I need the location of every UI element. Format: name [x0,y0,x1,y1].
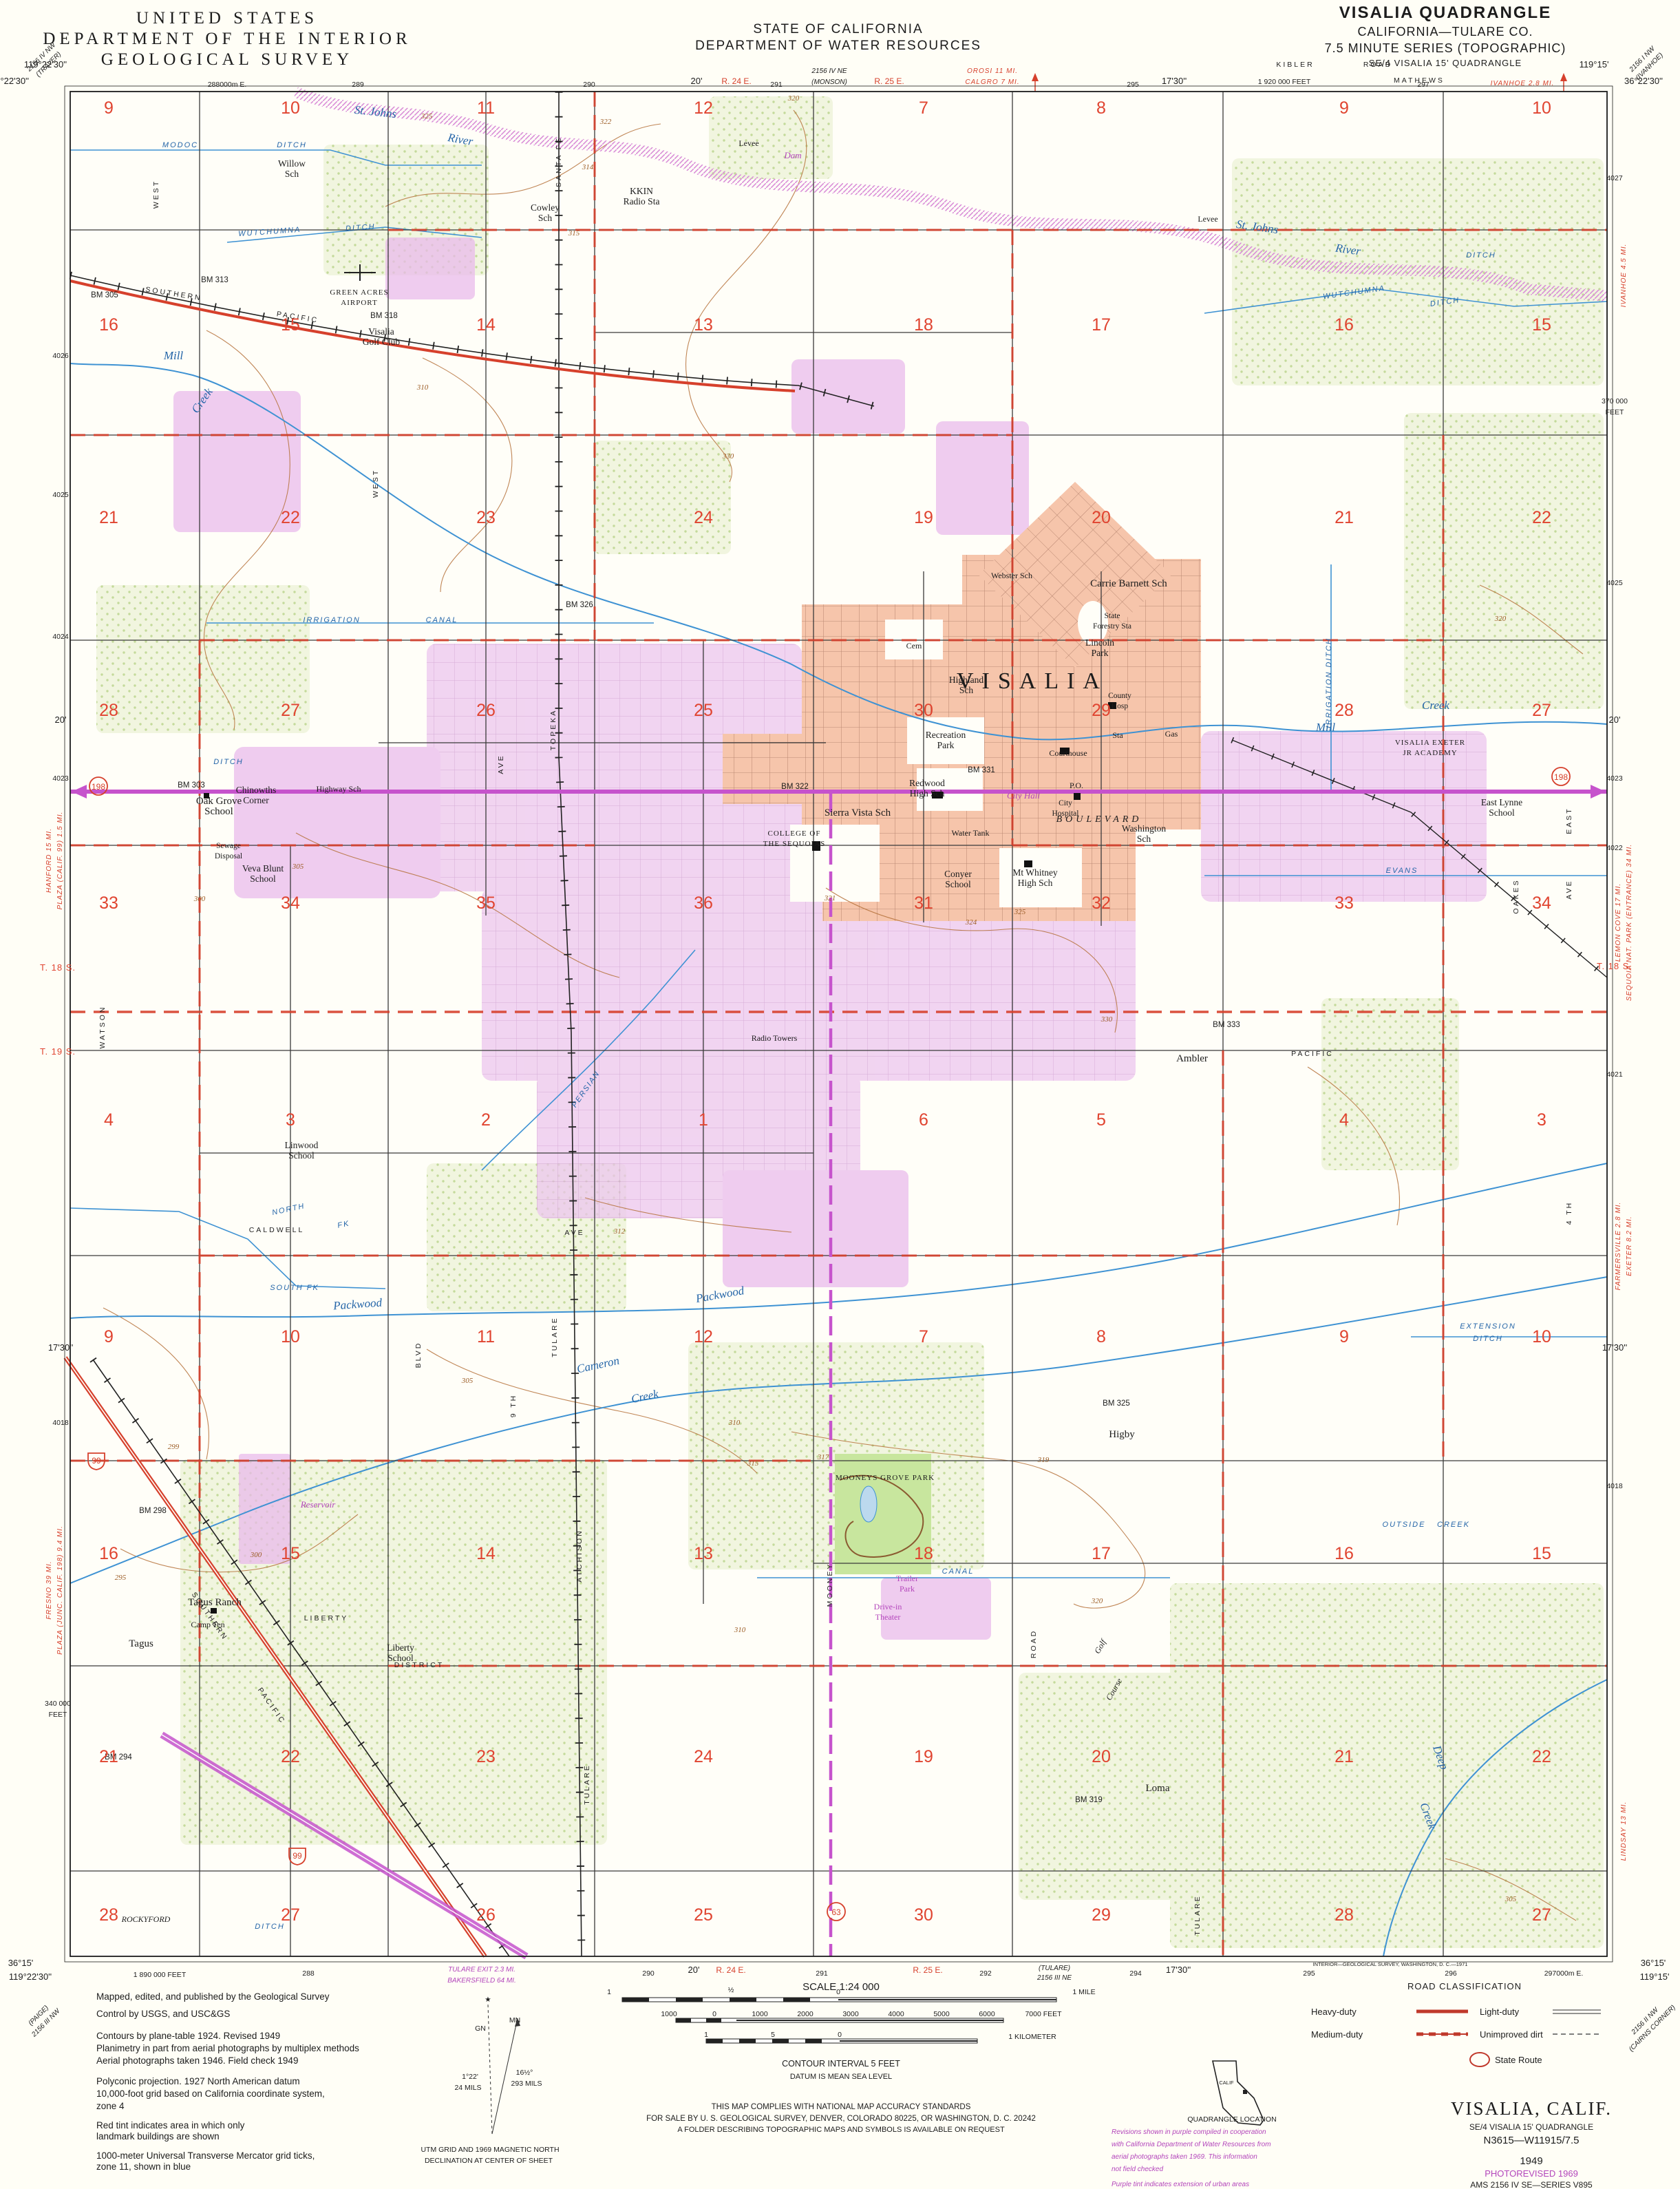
section-number: 23 [476,1747,496,1766]
datum-note: DATUM IS MEAN SEA LEVEL [790,2073,892,2081]
section-number: 36 [694,893,713,913]
map-label: PACIFIC [1291,1050,1334,1058]
map-label: Ambler [1176,1053,1208,1064]
section-number: 16 [99,1544,118,1563]
gn-mils: 24 MILS [454,2084,481,2092]
map-label: MODOC [162,141,198,149]
map-label: SANTA FE [555,136,563,187]
section-number: 5 [1096,1110,1106,1130]
title-block: VISALIA, CALIF. SE/4 VISALIA 15' QUADRAN… [1451,2098,1612,2189]
map-label: Highway Sch [317,784,361,794]
section-number: 21 [99,1747,118,1766]
map-label: CREEK [1437,1521,1470,1529]
section-number: 30 [914,701,933,720]
map-label: KIBLER [1276,61,1314,69]
contour-label: 300 [250,1551,262,1559]
section-number: 23 [476,508,496,527]
map-label: Creek [1422,699,1449,712]
purple-revision-note: aerial photographs taken 1969. This info… [1112,2153,1257,2161]
grid-north-label: GN [475,2024,486,2033]
gn-angle: 1°22' [462,2073,478,2081]
footer-credit-line: Planimetry in part from aerial photograp… [96,2043,359,2053]
map-label: ROAD [1030,1629,1038,1658]
margin-top-label: 36°22'30'' [0,76,29,86]
section-number: 14 [476,315,496,335]
section-number: 15 [281,1544,300,1563]
margin-right-label: SEQUOIA NAT. PARK (ENTRANCE) 34 MI. [1626,844,1633,1001]
contour-label: 320 [1091,1597,1103,1605]
map-label: Drive-inTheater [874,1602,902,1622]
section-number: 22 [281,508,300,527]
map-label: Mill [163,349,184,362]
margin-bottom-label: 288 [302,1969,315,1978]
scale-feet-label: 4000 [888,2010,904,2018]
map-label: WEST [372,469,380,498]
state-route-label: State Route [1495,2055,1542,2065]
section-number: 15 [1532,315,1551,335]
margin-left-label: PLAZA (JUNC. CALIF. 198) 9.4 MI. [56,1525,64,1655]
section-number: 29 [1092,1905,1111,1925]
folder-note: A FOLDER DESCRIBING TOPOGRAPHIC MAPS AND… [677,2126,1005,2134]
scale-feet-label: 0 [712,2010,716,2018]
section-number: 7 [919,98,928,118]
margin-top-label: R. 24 E. [721,76,751,86]
contour-label: 321 [824,894,836,902]
margin-right-label: LINDSAY 13 MI. [1620,1801,1628,1861]
contour-label: 295 [115,1574,127,1582]
section-number: 8 [1096,98,1106,118]
margin-top-label: (MONSON) [811,78,847,86]
scale-title: SCALE 1:24 000 [802,1981,880,1993]
margin-left-label: 4026 [52,352,69,360]
margin-top-label: 295 [1127,81,1139,89]
map-label: DITCH [1466,251,1496,260]
section-number: 15 [281,315,300,335]
map-label: EVANS [1386,867,1418,875]
footer-credit-line: Red tint indicates area in which only [96,2120,245,2130]
section-number: 28 [99,1905,118,1925]
map-label: Reservoir [300,1499,336,1510]
section-number: 11 [477,1327,495,1346]
section-number: 33 [1335,893,1354,913]
margin-right-label: 17'30'' [1602,1342,1627,1353]
map-label: LinwoodSchool [285,1140,319,1161]
map-label: BM 325 [1103,1399,1130,1408]
section-number: 22 [1532,508,1551,527]
section-number: 10 [281,1327,300,1346]
section-number: 25 [694,1905,713,1925]
section-number: 24 [694,1747,713,1766]
margin-bottom-label: R. 24 E. [716,1965,745,1975]
margin-bottom-label: 291 [816,1969,828,1978]
roadclass-title: ROAD CLASSIFICATION [1407,1981,1522,1991]
margin-bottom-label: 294 [1129,1969,1142,1978]
scale-feet-label: 7000 FEET [1025,2010,1062,2018]
scale-feet-label: 6000 [979,2010,995,2018]
purple-revision-note: with California Department of Water Reso… [1112,2141,1271,2148]
map-label: Dam [783,150,801,160]
contour-label: 305 [292,863,304,871]
margin-right-label: 370 000 [1602,397,1628,405]
section-number: 18 [914,315,933,335]
purple-revision-note: not field checked [1112,2166,1163,2173]
section-number: 4 [104,1110,114,1130]
ivanhoe-arrow [1560,73,1567,81]
light-duty-label: Light-duty [1480,2007,1520,2017]
map-label: RedwoodHigh Sch [909,778,945,799]
map-label: IRRIGATION [303,616,360,624]
footer-credit-line: 10,000-foot grid based on California coo… [96,2088,325,2099]
map-label: SOUTH FK [270,1284,319,1292]
margin-left-label: 20' [55,715,67,725]
section-number: 13 [694,315,713,335]
margin-top-label: 289 [352,81,364,89]
contour-label: 305 [461,1377,474,1385]
map-label: BM 318 [370,312,398,320]
section-number: 35 [476,893,496,913]
map-label: BM 303 [178,781,205,790]
map-label: CALDWELL [249,1226,305,1234]
section-number: 27 [1532,701,1551,720]
map-label: AVE [497,754,505,774]
margin-bottom-label: 36°15' [1641,1958,1666,1968]
state-route-number: 198 [92,782,105,792]
section-number: 30 [914,1905,933,1925]
agency-line-1: UNITED STATES [136,9,318,28]
topo-map-sheet: UNITED STATES DEPARTMENT OF THE INTERIOR… [0,0,1680,2189]
footer-credit-line: Mapped, edited, and published by the Geo… [96,1991,330,2002]
section-number: 21 [1335,508,1354,527]
contour-label: 324 [965,918,977,927]
margin-right-label: EXETER 8.2 MI. [1626,1216,1633,1276]
section-number: 11 [477,98,495,118]
orosi-arrow [1032,73,1039,81]
map-label: BM 322 [781,783,809,791]
scale-feet-label: 5000 [933,2010,950,2018]
map-label: 9 TH [509,1394,518,1418]
map-label: TULARE [551,1316,559,1357]
map-label: Sierra Vista Sch [825,807,891,818]
contour-label: 315 [568,229,580,237]
map-label: MOONEYS GROVE PARK [836,1474,935,1482]
declination-caption-2: DECLINATION AT CENTER OF SHEET [425,2157,553,2165]
section-number: 16 [1335,315,1354,335]
map-label: EXTENSION [1460,1322,1516,1331]
map-label: BM 331 [968,766,995,774]
purple-revision-note: Revisions shown in purple compiled in co… [1112,2128,1266,2136]
section-number: 18 [914,1544,933,1563]
accuracy-note: THIS MAP COMPLIES WITH NATIONAL MAP ACCU… [712,2103,971,2111]
map-label: IRRIGATION DITCH [1325,637,1333,728]
map-label: ConyerSchool [944,869,972,889]
section-number: 19 [914,508,933,527]
map-label: BM 319 [1075,1796,1103,1804]
margin-bottom-label: 36°15' [8,1958,34,1968]
scale-feet-label: 2000 [797,2010,814,2018]
section-number: 9 [104,98,114,118]
sale-note: FOR SALE BY U. S. GEOLOGICAL SURVEY, DEN… [646,2115,1036,2123]
map-label: DITCH [213,758,244,766]
margin-left-label: 340 000 [45,1700,71,1708]
section-number: 24 [694,508,713,527]
state-route-number: 63 [831,1907,841,1917]
agency-line-2: DEPARTMENT OF THE INTERIOR [43,30,411,48]
margin-top-label: 2156 IV NE [811,67,847,75]
contour-label: 325 [421,112,433,120]
margin-bottom-label: 292 [979,1969,992,1978]
map-label: MOONEY [826,1563,834,1607]
contour-label: 330 [1100,1015,1113,1024]
margin-bottom-label: 1 890 000 FEET [134,1971,187,1979]
declination-diagram: ★ GN MN 16½° 293 MILS 1°22' 24 MILS UTM … [421,1996,559,2165]
footer: ★ GN MN 16½° 293 MILS 1°22' 24 MILS UTM … [421,1981,1612,2189]
footer-credit-line: Contours by plane-table 1924. Revised 19… [96,2031,280,2041]
margin-bottom-label: 17'30'' [1166,1965,1191,1975]
agency-line-3: GEOLOGICAL SURVEY [101,50,353,69]
margin-bottom-label: 297000m E. [1544,1969,1584,1978]
margin-top-label: OROSI 11 MI. [967,67,1018,75]
map-label: OAKES [1512,878,1520,913]
section-number: 28 [1335,701,1354,720]
quad-subtitle-2: 7.5 MINUTE SERIES (TOPOGRAPHIC) [1325,41,1566,55]
margin-top-label: 290 [583,81,595,89]
margin-top-label: R. 25 E. [874,76,904,86]
scale-mile-label: 1 [607,1988,611,1996]
contour-label: 317 [817,1453,829,1461]
scale-bars: SCALE 1:24 000 CONTOUR INTERVAL 5 FEET D… [622,1981,1056,2134]
map-label: CANAL [942,1567,975,1576]
section-number: 17 [1092,315,1111,335]
margin-top-label: CALGRO 7 MI. [965,78,1019,86]
section-number: 3 [1537,1110,1546,1130]
margin-right-label: 4027 [1606,174,1623,182]
purple-revision-note: Purple tint indicates extension of urban… [1112,2181,1249,2188]
section-number: 21 [1335,1747,1354,1766]
section-number: 12 [694,98,713,118]
section-number: 14 [476,1544,496,1563]
section-number: 27 [1532,1905,1551,1925]
map-label: P.O. [1070,781,1083,790]
map-label: WATSON [98,1006,107,1049]
section-number: 9 [104,1327,114,1346]
margin-top-label: 20' [691,76,703,86]
contour-label: 305 [1504,1895,1517,1903]
margin-right-label: 4021 [1606,1070,1623,1079]
section-number: 20 [1092,1747,1111,1766]
section-number: 22 [1532,1747,1551,1766]
star-icon: ★ [485,1996,491,2004]
map-label: AVE [564,1229,584,1237]
corner-quad-note: 2156 II NW(CAIRNS CORNER) [1620,1996,1677,2053]
scale-mile-label: ½ [728,1986,734,1994]
scale-mile-label: 0 [836,1988,840,1996]
map-label: DITCH [1473,1335,1503,1343]
margin-top-label: 119°15' [1580,59,1609,70]
margin-bottom-label: INTERIOR—GEOLOGICAL SURVEY, WASHINGTON, … [1313,1961,1468,1967]
photorevised-note: PHOTOREVISED 1969 [1485,2168,1578,2179]
margin-bottom-label: 119°22'30'' [9,1971,52,1982]
state-route-oval [1470,2053,1489,2066]
map-label: Radio Towers [752,1033,798,1043]
margin-right-label: 4018 [1606,1482,1623,1490]
margin-top-label: 297 [1417,81,1429,89]
margin-left-label: 17'30'' [48,1342,73,1353]
section-number: 16 [99,315,118,335]
map-canvas: UNITED STATES DEPARTMENT OF THE INTERIOR… [0,0,1680,2189]
map-label: BM 305 [91,291,118,299]
declination-caption-1: UTM GRID AND 1969 MAGNETIC NORTH [421,2146,559,2154]
section-number: 9 [1339,98,1349,118]
sheet-year: 1949 [1520,2155,1542,2167]
road-classification: ROAD CLASSIFICATION Heavy-duty Light-dut… [1311,1981,1601,2066]
section-number: 16 [1335,1544,1354,1563]
map-label: Loma [1146,1783,1170,1794]
map-label: BM 298 [139,1507,167,1515]
map-label: BM 313 [201,276,228,284]
section-number: 28 [1335,1905,1354,1925]
margin-left-label: 4025 [52,491,69,499]
sheet-subtitle: SE/4 VISALIA 15' QUADRANGLE [1469,2122,1593,2132]
margin-left-label: FRESNO 39 MI. [45,1561,53,1619]
contour-label: 299 [168,1443,180,1451]
unimproved-dirt-label: Unimproved dirt [1480,2029,1543,2040]
margin-top-label: IVANHOE 2.8 MI. [1491,80,1555,87]
contour-label: 312 [613,1227,626,1236]
section-number: 12 [694,1327,713,1346]
map-label: LIBERTY [304,1614,349,1622]
map-label: TULARE [583,1764,591,1804]
map-label: Sta [1112,730,1123,740]
state-abbrev: CALIF [1219,2080,1234,2086]
header: UNITED STATES DEPARTMENT OF THE INTERIOR… [43,3,1566,69]
quadrangle-location: QUADRANGLE LOCATION CALIF [1187,2061,1276,2125]
margin-bottom-label: 119°15' [1640,1971,1670,1982]
footer-credit-line: Aerial photographs taken 1946. Field che… [96,2055,298,2066]
contour-interval: CONTOUR INTERVAL 5 FEET [782,2059,900,2069]
state-line-1: STATE OF CALIFORNIA [753,22,923,36]
section-number: 7 [919,1327,928,1346]
footer-credit-line: Control by USGS, and USC&GS [96,2009,230,2019]
section-number: 33 [99,893,118,913]
map-label: AVE [1565,879,1573,899]
margin-bottom-label: 290 [642,1969,655,1978]
margin-bottom-label: 295 [1303,1969,1315,1978]
section-number: 34 [1532,893,1551,913]
map-label: TOPEKA [549,709,557,750]
map-label: Camp Ten [191,1620,224,1629]
contour-label: 322 [599,118,612,126]
section-number: 2 [481,1110,491,1130]
margin-left-label: FEET [49,1711,67,1719]
map-label: DITCH [277,141,307,149]
margin-left-label: PLAZA (CALIF. 99) 1.5 MI. [56,812,64,910]
map-interior [65,73,1607,1956]
margin-right-label: FEET [1606,408,1624,416]
us-route-number: 99 [293,1851,302,1861]
mn-mils: 293 MILS [511,2080,542,2088]
section-number: 34 [281,893,300,913]
ams-series: AMS 2156 IV SE—SERIES V895 [1470,2180,1593,2189]
margin-right-label: 4025 [1606,579,1623,587]
sheet-coordinates: N3615—W11915/7.5 [1484,2135,1580,2146]
contour-label: 325 [1014,908,1026,916]
section-number: 29 [1092,701,1111,720]
map-label: BM 333 [1213,1021,1240,1029]
quad-subtitle-1: CALIFORNIA—TULARE CO. [1357,25,1533,39]
section-number: 26 [476,701,496,720]
section-number: 4 [1339,1110,1349,1130]
contour-label: 320 [1494,615,1507,623]
map-label: EAST [1565,807,1573,834]
section-number: 10 [1532,1327,1551,1346]
map-label: Carrie Barnett Sch [1090,578,1167,589]
map-label: ROCKYFORD [121,1914,171,1924]
sheet-title: VISALIA, CALIF. [1451,2098,1612,2119]
map-label: ROAD [1363,61,1392,69]
map-label: Webster Sch [991,571,1032,580]
section-number: 15 [1532,1544,1551,1563]
state-route-number: 198 [1554,772,1568,782]
contour-label: 314 [582,163,594,171]
map-label: Water Tank [952,828,990,838]
map-label: OUTSIDE [1383,1521,1426,1529]
section-number: 31 [914,893,933,913]
quad-location-caption: QUADRANGLE LOCATION [1187,2115,1276,2124]
margin-bottom-label: (TULARE) [1039,1965,1070,1972]
map-label: Mt WhitneyHigh Sch [1012,867,1058,888]
quad-title: VISALIA QUADRANGLE [1339,3,1551,22]
contour-label: 320 [787,94,800,103]
section-number: 10 [281,98,300,118]
contour-label: 300 [193,895,206,903]
map-label: Gas [1165,729,1178,739]
section-number: 10 [1532,98,1551,118]
scale-km-label: 1 [704,2031,708,2039]
margin-left-label: T. 19 S. [40,1046,76,1057]
margin-left-label: 4024 [52,633,69,641]
contour-label: 310 [416,383,429,392]
contour-label: 315 [747,1459,759,1468]
map-label: BLVD [414,1342,423,1368]
map-label: Cem [906,641,922,651]
section-number: 20 [1092,508,1111,527]
margin-bottom-label: BAKERSFIELD 64 MI. [447,1977,515,1985]
section-number: 27 [281,701,300,720]
margin-top-label: 17'30'' [1162,76,1187,86]
section-number: 21 [99,508,118,527]
scale-feet-label: 3000 [842,2010,859,2018]
contour-label: 319 [1037,1456,1050,1464]
footer-credit-line: zone 11, shown in blue [96,2161,191,2172]
city-name: VISALIA [957,668,1108,694]
section-number: 22 [281,1747,300,1766]
map-label: Tagus Ranch [188,1597,242,1608]
state-line-2: DEPARTMENT OF WATER RESOURCES [695,39,981,53]
section-number: 27 [281,1905,300,1925]
margin-bottom-label: 20' [688,1965,700,1975]
magnetic-north-label: MN [509,2016,520,2024]
scale-km-label: 0 [838,2031,842,2039]
section-number: 8 [1096,1327,1106,1346]
map-label: 4 TH [1565,1201,1573,1225]
scale-mile-label: 1 MILE [1072,1988,1095,1996]
margin-bottom-label: 296 [1445,1969,1457,1978]
section-number: 32 [1092,893,1111,913]
contour-label: 330 [722,452,734,461]
margin-right-label: 4022 [1606,844,1623,852]
margin-bottom-label: R. 25 E. [913,1965,942,1975]
margin-top-label: 1 920 000 FEET [1258,78,1311,86]
